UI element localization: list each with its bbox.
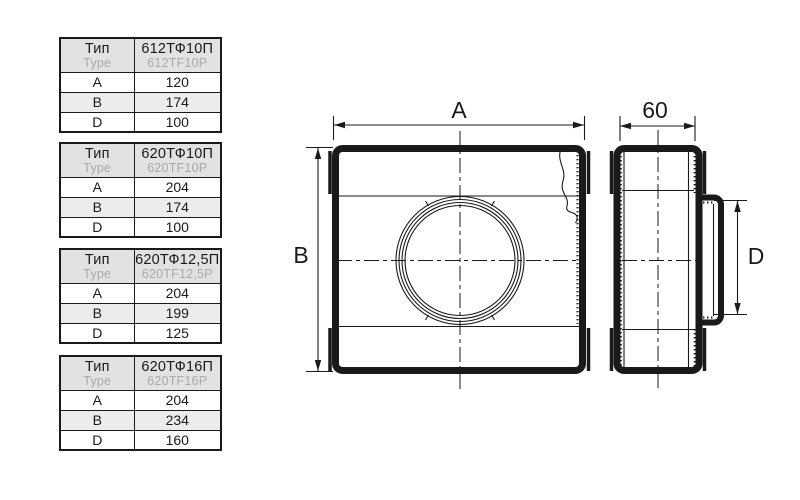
param-cell: D xyxy=(60,430,134,450)
code-header-cell: 620ТФ16П 620TF16P xyxy=(134,356,221,390)
param-cell: B xyxy=(60,197,134,217)
product-code-en: 612TF10P xyxy=(135,57,221,70)
table-row: A 204 xyxy=(60,177,221,197)
value-cell: 125 xyxy=(134,323,221,343)
param-cell: D xyxy=(60,323,134,343)
table-row: A 204 xyxy=(60,283,221,303)
code-header-cell: 612ТФ10П 612TF10P xyxy=(134,38,221,72)
value-cell: 120 xyxy=(134,72,221,92)
dimension-a: A xyxy=(334,97,585,140)
table-row: D 125 xyxy=(60,323,221,343)
value-cell: 174 xyxy=(134,92,221,112)
value-cell: 100 xyxy=(134,112,221,132)
spec-table-620tf16p: Тип Type 620ТФ16П 620TF16P A 204 B 234 D… xyxy=(59,355,222,451)
value-cell: 234 xyxy=(134,410,221,430)
table-row: B 199 xyxy=(60,303,221,323)
technical-drawing: A B xyxy=(270,85,790,415)
type-label-en: Type xyxy=(61,268,134,281)
dim-d-label: D xyxy=(748,243,765,269)
value-cell: 199 xyxy=(134,303,221,323)
type-label-en: Type xyxy=(61,162,134,175)
param-cell: B xyxy=(60,303,134,323)
breakout-line xyxy=(560,149,577,223)
product-code-ru: 620ТФ16П xyxy=(135,359,221,375)
table-header-row: Тип Type 620ТФ16П 620TF16P xyxy=(60,356,221,390)
spec-table-620tf12-5p: Тип Type 620ТФ12,5П 620TF12,5P A 204 B 1… xyxy=(59,248,222,344)
value-cell: 204 xyxy=(134,390,221,410)
side-spigot-outline xyxy=(700,198,721,323)
table-row: A 204 xyxy=(60,390,221,410)
product-code-en: 620TF16P xyxy=(135,375,221,388)
param-cell: A xyxy=(60,72,134,92)
table-row: B 234 xyxy=(60,410,221,430)
type-label-ru: Тип xyxy=(61,252,134,268)
dim-a-label: A xyxy=(451,97,467,123)
side-view: 60 D xyxy=(612,97,765,389)
table-row: B 174 xyxy=(60,197,221,217)
front-body-outline xyxy=(336,149,583,371)
code-header-cell: 620ТФ12,5П 620TF12,5P xyxy=(134,249,221,283)
table-header-row: Тип Type 620ТФ12,5П 620TF12,5P xyxy=(60,249,221,283)
table-header-row: Тип Type 612ТФ10П 612TF10P xyxy=(60,38,221,72)
spec-table-612tf10p: Тип Type 612ТФ10П 612TF10P A 120 B 174 D… xyxy=(59,37,222,133)
value-cell: 174 xyxy=(134,197,221,217)
value-cell: 160 xyxy=(134,430,221,450)
type-header-cell: Тип Type xyxy=(60,143,134,177)
table-header-row: Тип Type 620ТФ10П 620TF10P xyxy=(60,143,221,177)
type-label-ru: Тип xyxy=(61,359,134,375)
param-cell: A xyxy=(60,390,134,410)
type-label-en: Type xyxy=(61,57,134,70)
type-header-cell: Тип Type xyxy=(60,249,134,283)
param-cell: B xyxy=(60,410,134,430)
param-cell: D xyxy=(60,217,134,237)
code-header-cell: 620ТФ10П 620TF10P xyxy=(134,143,221,177)
product-code-ru: 612ТФ10П xyxy=(135,41,221,57)
param-cell: A xyxy=(60,177,134,197)
type-header-cell: Тип Type xyxy=(60,38,134,72)
table-row: A 120 xyxy=(60,72,221,92)
product-code-ru: 620ТФ12,5П xyxy=(135,252,221,268)
spec-sheet: Тип Type 612ТФ10П 612TF10P A 120 B 174 D… xyxy=(0,0,800,500)
type-label-en: Type xyxy=(61,375,134,388)
product-code-en: 620TF10P xyxy=(135,162,221,175)
table-row: D 160 xyxy=(60,430,221,450)
product-code-en: 620TF12,5P xyxy=(135,268,221,281)
front-view: A B xyxy=(293,97,588,391)
spec-table-620tf10p: Тип Type 620ТФ10П 620TF10P A 204 B 174 D… xyxy=(59,142,222,238)
type-label-ru: Тип xyxy=(61,41,134,57)
dimension-b: B xyxy=(293,148,333,372)
product-code-ru: 620ТФ10П xyxy=(135,146,221,162)
table-row: D 100 xyxy=(60,217,221,237)
type-label-ru: Тип xyxy=(61,146,134,162)
param-cell: D xyxy=(60,112,134,132)
type-header-cell: Тип Type xyxy=(60,356,134,390)
value-cell: 204 xyxy=(134,177,221,197)
dim-b-label: B xyxy=(293,242,308,268)
value-cell: 100 xyxy=(134,217,221,237)
param-cell: B xyxy=(60,92,134,112)
value-cell: 204 xyxy=(134,283,221,303)
table-row: D 100 xyxy=(60,112,221,132)
dim-60-label: 60 xyxy=(642,97,668,123)
param-cell: A xyxy=(60,283,134,303)
table-row: B 174 xyxy=(60,92,221,112)
